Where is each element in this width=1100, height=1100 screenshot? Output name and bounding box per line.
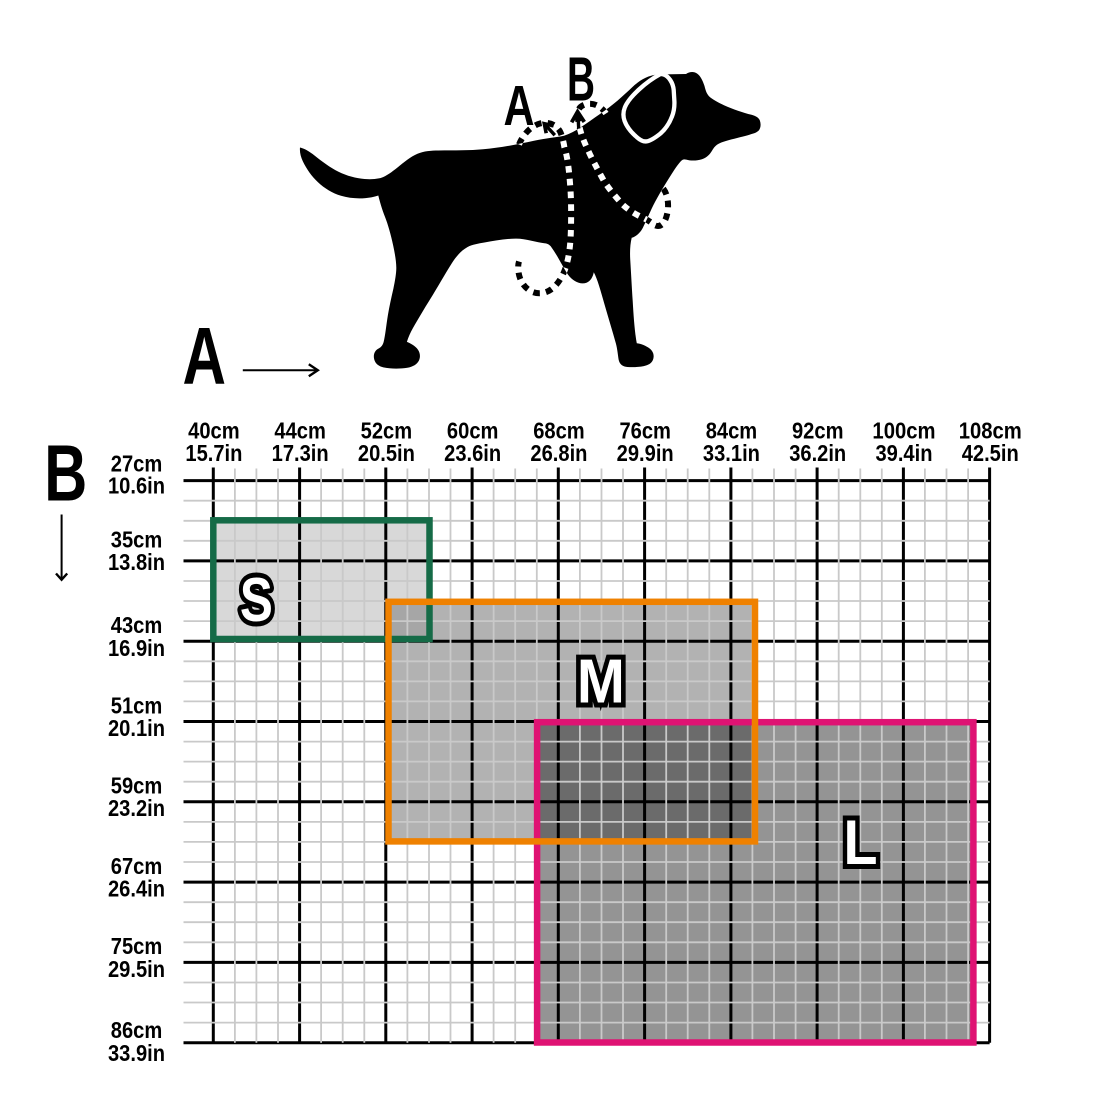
svg-text:36.2in: 36.2in [789,440,846,466]
svg-text:L: L [844,808,878,878]
svg-text:39.4in: 39.4in [875,440,932,466]
svg-text:20.1in: 20.1in [108,715,165,741]
svg-text:29.9in: 29.9in [617,440,674,466]
svg-text:33.9in: 33.9in [108,1040,165,1066]
svg-text:29.5in: 29.5in [108,956,165,982]
svg-text:B: B [567,46,595,115]
svg-text:15.7in: 15.7in [185,440,242,466]
svg-text:26.4in: 26.4in [108,876,165,902]
svg-text:S: S [240,566,273,635]
svg-text:16.9in: 16.9in [108,635,165,661]
svg-text:A: A [504,74,535,137]
svg-text:A: A [183,311,227,401]
svg-text:17.3in: 17.3in [272,440,329,466]
svg-text:23.2in: 23.2in [108,795,165,821]
svg-text:26.8in: 26.8in [530,440,587,466]
svg-text:23.6in: 23.6in [444,440,501,466]
svg-text:13.8in: 13.8in [108,549,165,575]
svg-text:33.1in: 33.1in [703,440,760,466]
svg-text:M: M [577,648,625,717]
svg-text:10.6in: 10.6in [108,473,165,499]
svg-text:20.5in: 20.5in [358,440,415,466]
svg-text:42.5in: 42.5in [962,440,1019,466]
svg-text:B: B [44,428,87,517]
